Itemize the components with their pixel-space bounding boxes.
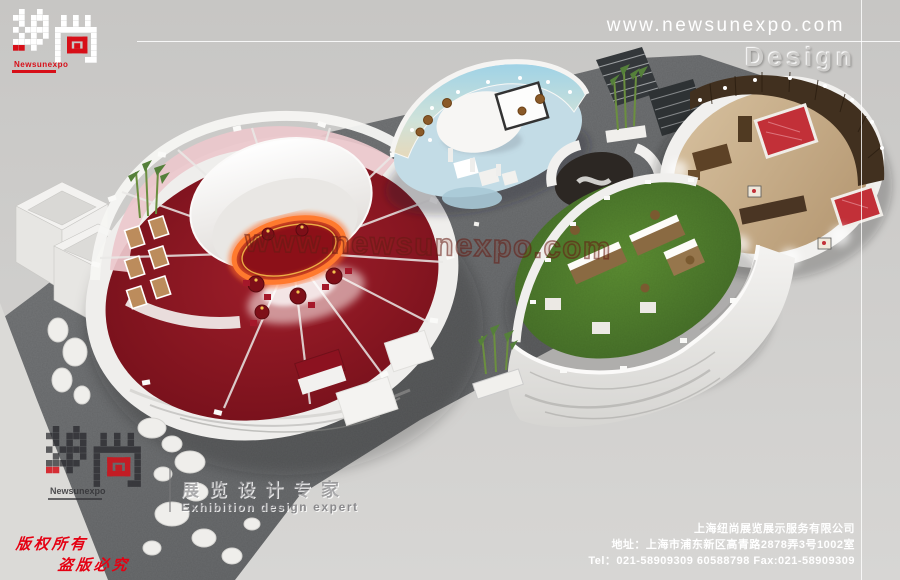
exhibition-design-poster: www.newsunexpo.com Design Newsunexpo www… xyxy=(0,0,900,580)
company-address: 地址：上海市浦东新区高青路2878弄3号1002室 xyxy=(588,537,855,553)
copyright-line1: 版权所有 xyxy=(15,533,89,554)
website-url: www.newsunexpo.com xyxy=(607,15,845,37)
side-rule xyxy=(861,0,862,580)
footer-divider xyxy=(169,468,171,512)
tagline-chinese: 展览设计专家 xyxy=(181,476,349,502)
brand-name-bottom: Newsunexpo xyxy=(50,486,106,496)
exhibition-hall-render xyxy=(0,0,900,580)
design-label: Design xyxy=(745,42,856,73)
watermark-text: www.newsunexpo.com xyxy=(245,223,613,267)
company-info: 上海纽尚展览展示服务有限公司 地址：上海市浦东新区高青路2878弄3号1002室… xyxy=(588,521,855,569)
company-contacts: Tel：021-58909309 60588798 Fax:021-589093… xyxy=(588,553,855,569)
copyright-line2: 盗版必究 xyxy=(57,554,131,575)
company-name: 上海纽尚展览展示服务有限公司 xyxy=(588,521,855,537)
brand-underline-bottom xyxy=(48,498,102,500)
brand-name-top: Newsunexpo xyxy=(14,60,68,69)
tagline-english: Exhibition design expert xyxy=(181,500,359,514)
brand-underline-top xyxy=(12,70,56,73)
